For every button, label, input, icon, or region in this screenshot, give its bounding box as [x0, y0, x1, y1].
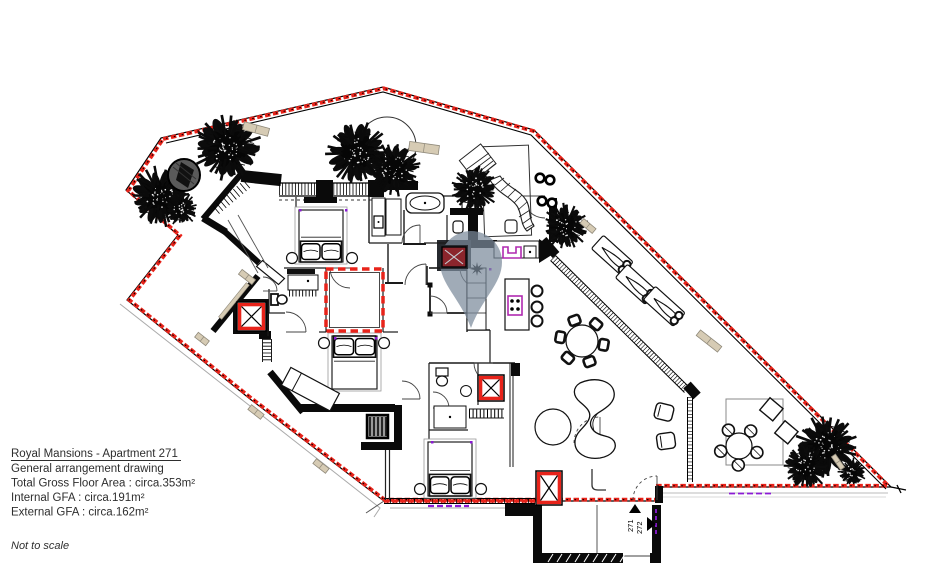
svg-text:External GFA : circa.162m²: External GFA : circa.162m²: [11, 507, 149, 519]
svg-text:Internal GFA : circa.191m²: Internal GFA : circa.191m²: [11, 492, 145, 504]
svg-text:Total Gross Floor Area : circa: Total Gross Floor Area : circa.353m²: [11, 478, 195, 490]
svg-text:271: 271: [626, 519, 635, 532]
svg-text:General arrangement drawing: General arrangement drawing: [11, 463, 164, 475]
svg-text:Not to scale: Not to scale: [11, 540, 69, 552]
svg-text:Royal Mansions - Apartment 271: Royal Mansions - Apartment 271: [11, 448, 178, 460]
svg-text:272: 272: [635, 521, 644, 534]
